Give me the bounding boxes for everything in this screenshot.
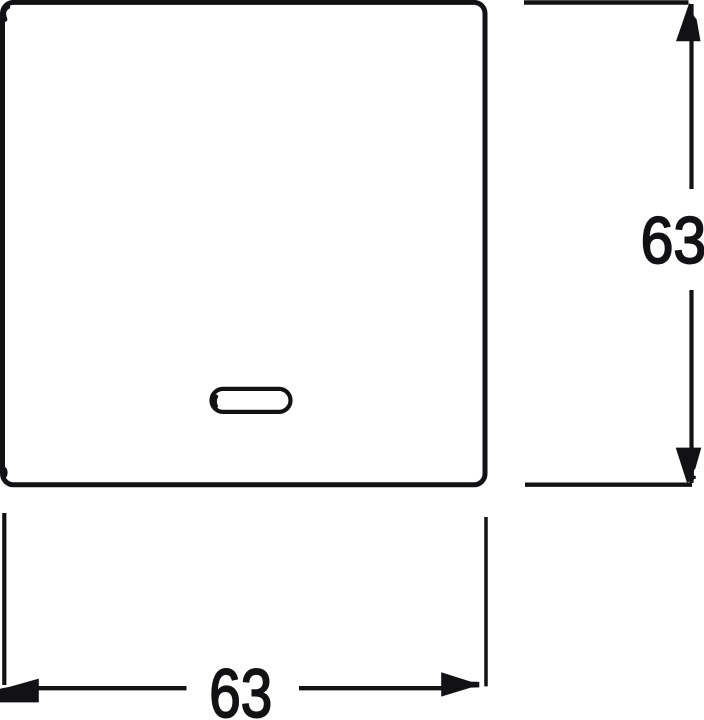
svg-text:63: 63 xyxy=(641,204,704,277)
svg-text:63: 63 xyxy=(209,656,272,720)
